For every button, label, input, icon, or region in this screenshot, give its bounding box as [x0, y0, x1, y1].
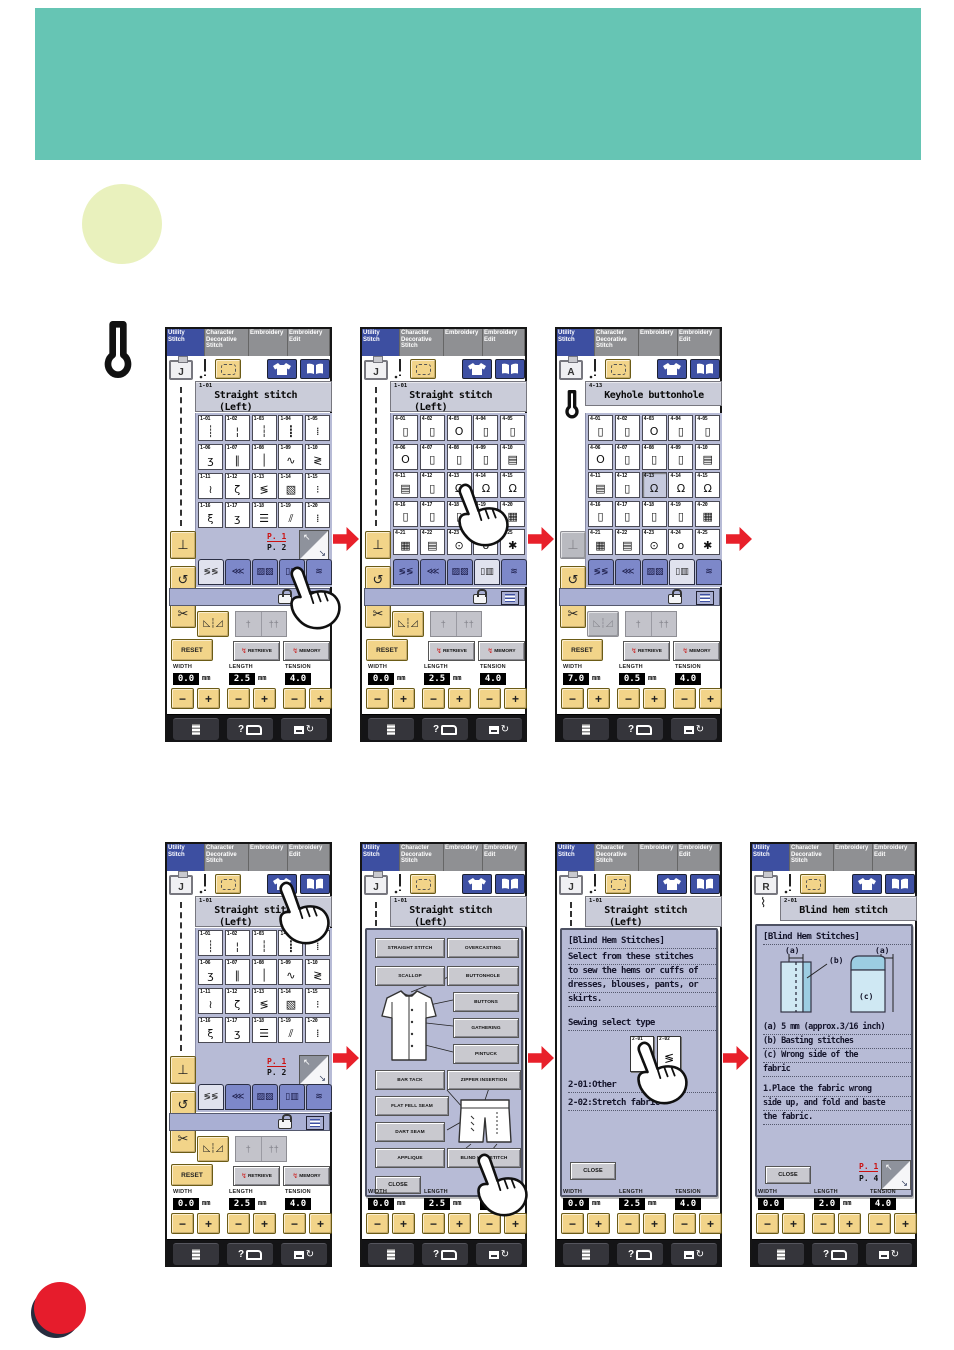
tab-embroidery-edit[interactable]: Embroidery Edit: [288, 329, 330, 356]
width-value: 0.0: [173, 1198, 199, 1210]
stitch-guide-book-icon[interactable]: [696, 591, 714, 605]
length-plus-button[interactable]: +: [448, 688, 471, 709]
tab-utility-stitch[interactable]: Utility Stitch: [167, 844, 205, 871]
stitch-guide-book-icon[interactable]: [501, 591, 519, 605]
tension-minus-button[interactable]: −: [673, 688, 696, 709]
tab-embroidery-edit[interactable]: Embroidery Edit: [483, 844, 525, 871]
length-minus-button[interactable]: −: [422, 1213, 445, 1234]
stitch-list-button[interactable]: [563, 1243, 609, 1265]
tension-value: 4.0: [480, 673, 506, 685]
stitch-cell-4-03[interactable]: 4-03O: [642, 415, 667, 441]
tab-embroidery[interactable]: Embroidery: [444, 329, 483, 356]
retrieve-button[interactable]: ↯RETRIEVE: [428, 641, 475, 661]
stitch-cell-glyph: ζ: [226, 995, 249, 1013]
tension-plus-button[interactable]: +: [894, 1213, 917, 1234]
presser-foot-exchange-button[interactable]: ↻: [866, 1243, 912, 1265]
width-plus-button[interactable]: +: [392, 1213, 415, 1234]
needle-thread-icon: ↯: [292, 647, 298, 655]
twin-needle-buttons[interactable]: †††: [235, 1136, 287, 1162]
tab-utility-stitch[interactable]: Utility Stitch: [167, 329, 205, 356]
length-minus-button[interactable]: −: [617, 1213, 640, 1234]
select-option-buttons[interactable]: BUTTONS: [453, 992, 519, 1012]
stitch-code: 1-01: [394, 383, 407, 389]
stitch-cell-1-20[interactable]: 1-20⁞: [305, 502, 330, 528]
select-option-applique[interactable]: APPLIQUE: [375, 1148, 445, 1168]
stitch-cell-1-07[interactable]: 1-07∥: [225, 959, 250, 985]
presser-foot-exchange-button[interactable]: ↻: [281, 718, 327, 740]
length-value: 2.5: [229, 1198, 255, 1210]
stitch-cell-4-21[interactable]: 4-21▦: [588, 529, 613, 555]
retrieve-button[interactable]: ↯RETRIEVE: [233, 641, 280, 661]
length-minus-button[interactable]: −: [227, 688, 250, 709]
mirror-image-button[interactable]: ◺┆◿: [392, 611, 424, 637]
page-turn-button[interactable]: ↖↘: [881, 1160, 911, 1190]
stitch-category-tab-5[interactable]: ≋: [306, 1084, 332, 1110]
stitch-category-tab-2[interactable]: ⋘: [420, 559, 446, 585]
length-plus-button[interactable]: +: [643, 1213, 666, 1234]
stitch-cell-glyph: ▯: [474, 422, 497, 440]
reset-button[interactable]: RESET: [366, 639, 408, 661]
tension-minus-button[interactable]: −: [283, 1213, 306, 1234]
help-button[interactable]: ?: [422, 718, 468, 740]
free-motion-button[interactable]: [605, 874, 631, 894]
stitch-cell-4-21[interactable]: 4-21▦: [393, 529, 418, 555]
fabric-type-select-button[interactable]: [852, 874, 882, 894]
stitch-cell-1-16[interactable]: 1-16ξ: [198, 1017, 223, 1043]
single-needle-icon: †: [431, 612, 457, 636]
tab-utility-stitch[interactable]: Utility Stitch: [362, 844, 400, 871]
stitch-cell-1-10[interactable]: 1-10≷: [305, 959, 330, 985]
stitch-category-tab-1[interactable]: ≶≶: [198, 559, 224, 585]
stitch-cell-1-18[interactable]: 1-18☰: [252, 502, 277, 528]
stitch-cell-1-09[interactable]: 1-09∿: [278, 444, 303, 470]
length-label: LENGTH: [229, 664, 253, 670]
free-motion-button[interactable]: [605, 359, 631, 379]
help-button[interactable]: ?: [617, 1243, 663, 1265]
tension-label: TENSION: [285, 1189, 311, 1195]
stitch-cell-4-10[interactable]: 4-10▤: [500, 444, 525, 470]
stitch-cell-1-08[interactable]: 1-08│: [252, 959, 277, 985]
manual-page: Utility StitchCharacter Decorative Stitc…: [0, 0, 954, 1350]
select-option-gathering[interactable]: GATHERING: [453, 1018, 519, 1038]
tab-embroidery[interactable]: Embroidery: [639, 844, 678, 871]
select-option-scallop[interactable]: SCALLOP: [375, 966, 445, 986]
twin-needle-buttons[interactable]: †††: [430, 611, 482, 637]
presser-foot-exchange-button[interactable]: ↻: [671, 718, 717, 740]
presser-foot-exchange-button[interactable]: ↻: [671, 1243, 717, 1265]
tension-minus-button[interactable]: −: [868, 1213, 891, 1234]
reset-button[interactable]: RESET: [171, 639, 213, 661]
help-button[interactable]: ?: [227, 718, 273, 740]
stitch-cell-4-17[interactable]: 4-17▯: [420, 501, 445, 527]
tab-utility-stitch[interactable]: Utility Stitch: [362, 329, 400, 356]
select-option-straight-stitch[interactable]: STRAIGHT STITCH: [375, 938, 445, 958]
needle-icon: [589, 873, 601, 895]
mode-tab-bar: Utility StitchCharacter Decorative Stitc…: [167, 844, 330, 871]
stitch-cell-1-03[interactable]: 1-03┆: [252, 415, 277, 441]
flow-arrow: [726, 527, 752, 551]
length-plus-button[interactable]: +: [448, 1213, 471, 1234]
stitch-cell-4-13[interactable]: 4-13Ω: [642, 472, 667, 498]
sewing-machine-icon: [246, 1250, 262, 1260]
free-motion-button[interactable]: [410, 359, 436, 379]
presser-foot-exchange-button[interactable]: ↻: [476, 1243, 522, 1265]
stitch-cell-4-15[interactable]: 4-15Ω: [695, 472, 720, 498]
tab-character-decorative-stitch[interactable]: Character Decorative Stitch: [400, 329, 444, 356]
width-plus-button[interactable]: +: [197, 1213, 220, 1234]
pattern-explanation-button[interactable]: [300, 359, 330, 379]
stitch-cell-4-04[interactable]: 4-04▯: [473, 415, 498, 441]
width-minus-button[interactable]: −: [171, 1213, 194, 1234]
stitch-cell-4-01[interactable]: 4-01▯: [588, 415, 613, 441]
stitch-cell-4-05[interactable]: 4-05▯: [695, 415, 720, 441]
twin-needle-buttons[interactable]: †††: [235, 611, 287, 637]
close-button[interactable]: CLOSE: [765, 1166, 811, 1184]
stitch-cell-4-12[interactable]: 4-12▯: [615, 472, 640, 498]
shirt-icon: [467, 362, 487, 376]
select-option-zipper-insertion[interactable]: ZIPPER INSERTION: [447, 1070, 521, 1090]
length-unit: mm: [258, 1199, 266, 1207]
close-button[interactable]: CLOSE: [570, 1162, 616, 1180]
stitch-cell-4-24[interactable]: 4-24o: [668, 529, 693, 555]
pattern-explanation-button[interactable]: [495, 359, 525, 379]
stitch-category-tab-1[interactable]: ≶≶: [393, 559, 419, 585]
stitch-cell-4-18[interactable]: 4-18▯: [642, 501, 667, 527]
tab-character-decorative-stitch[interactable]: Character Decorative Stitch: [595, 844, 639, 871]
stitch-cell-4-02[interactable]: 4-02▯: [420, 415, 445, 441]
stitch-cell-1-10[interactable]: 1-10≷: [305, 444, 330, 470]
tension-minus-button[interactable]: −: [283, 688, 306, 709]
stitch-cell-1-19[interactable]: 1-19⫽: [278, 502, 303, 528]
tension-plus-button[interactable]: +: [309, 1213, 332, 1234]
stitch-cell-4-22[interactable]: 4-22▤: [420, 529, 445, 555]
stitch-category-tab-3[interactable]: ▨▨: [642, 559, 668, 585]
stitch-cell-1-16[interactable]: 1-16ξ: [198, 502, 223, 528]
dialog-step-line: the fabric.: [763, 1112, 911, 1125]
width-label: WIDTH: [368, 1189, 387, 1195]
length-minus-button[interactable]: −: [812, 1213, 835, 1234]
machine-function-bar: ?↻: [362, 1239, 525, 1267]
width-minus-button[interactable]: −: [561, 688, 584, 709]
stitch-cell-4-09[interactable]: 4-09▯: [668, 444, 693, 470]
pattern-explanation-button[interactable]: [690, 359, 720, 379]
retrieve-button[interactable]: ↯RETRIEVE: [623, 641, 670, 661]
fabric-type-select-button[interactable]: [462, 359, 492, 379]
stitch-category-tab-4[interactable]: ▯▥: [279, 1084, 305, 1110]
tab-embroidery-edit[interactable]: Embroidery Edit: [678, 329, 720, 356]
page-turn-button[interactable]: ↖↘: [299, 530, 329, 560]
stitch-cell-4-11[interactable]: 4-11▤: [588, 472, 613, 498]
needle-thread-icon: ↯: [487, 647, 493, 655]
stitch-cell-1-14[interactable]: 1-14▧: [278, 473, 303, 499]
stitch-cell-4-17[interactable]: 4-17▯: [615, 501, 640, 527]
width-minus-button[interactable]: −: [756, 1213, 779, 1234]
mirror-image-button[interactable]: ◺┆◿: [197, 611, 229, 637]
stitch-cell-1-11[interactable]: 1-11≀: [198, 988, 223, 1014]
tab-embroidery[interactable]: Embroidery: [249, 329, 288, 356]
stitch-cell-glyph: ┋: [279, 422, 302, 440]
width-minus-button[interactable]: −: [171, 688, 194, 709]
memory-button[interactable]: ↯MEMORY: [673, 641, 720, 661]
stitch-cell-1-01[interactable]: 1-01┊: [198, 930, 223, 956]
reset-button[interactable]: RESET: [171, 1164, 213, 1186]
stitch-cell-1-01[interactable]: 1-01┊: [198, 415, 223, 441]
stitch-list-button[interactable]: [368, 718, 414, 740]
tab-utility-stitch[interactable]: Utility Stitch: [557, 844, 595, 871]
fabric-type-select-button[interactable]: [657, 359, 687, 379]
stitch-cell-glyph: ≶: [253, 480, 276, 498]
mirror-image-button[interactable]: ◺┆◿: [197, 1136, 229, 1162]
stitch-cell-4-06[interactable]: 4-06O: [393, 444, 418, 470]
tab-character-decorative-stitch[interactable]: Character Decorative Stitch: [205, 844, 249, 871]
width-plus-button[interactable]: +: [782, 1213, 805, 1234]
presser-foot-small-icon: [489, 1251, 499, 1259]
select-option-pintuck[interactable]: PINTUCK: [453, 1044, 519, 1064]
stitch-cell-4-05[interactable]: 4-05▯: [500, 415, 525, 441]
stitch-cell-4-22[interactable]: 4-22▤: [615, 529, 640, 555]
stitch-cell-glyph: ▦: [589, 536, 612, 554]
stitch-cell-4-23[interactable]: 4-23⊙: [642, 529, 667, 555]
straight-stitch-guide-line: [375, 387, 377, 526]
tab-embroidery-edit[interactable]: Embroidery Edit: [678, 844, 720, 871]
shirt-icon: [662, 362, 682, 376]
select-option-bar-tack[interactable]: BAR TACK: [375, 1070, 445, 1090]
stitch-cell-4-07[interactable]: 4-07▯: [615, 444, 640, 470]
fabric-type-select-button[interactable]: [657, 874, 687, 894]
stitch-guide-book-icon[interactable]: [306, 1116, 324, 1130]
pivot-button[interactable]: ⊥: [170, 1056, 196, 1084]
length-plus-button[interactable]: +: [253, 688, 276, 709]
stitch-category-tab-5[interactable]: ≋: [501, 559, 527, 585]
width-plus-button[interactable]: +: [197, 688, 220, 709]
help-button[interactable]: ?: [422, 1243, 468, 1265]
stitch-cell-1-02[interactable]: 1-02¦: [225, 930, 250, 956]
pattern-explanation-button[interactable]: [690, 874, 720, 894]
stitch-cell-4-25[interactable]: 4-25✱: [695, 529, 720, 555]
stitch-cell-1-17[interactable]: 1-17ʒ: [225, 1017, 250, 1043]
free-motion-button[interactable]: [410, 874, 436, 894]
stitch-list-button[interactable]: [173, 1243, 219, 1265]
tension-plus-button[interactable]: +: [699, 1213, 722, 1234]
width-plus-button[interactable]: +: [392, 688, 415, 709]
stitch-cell-1-06[interactable]: 1-06ʒ: [198, 959, 223, 985]
free-motion-icon: [806, 879, 821, 890]
length-plus-button[interactable]: +: [253, 1213, 276, 1234]
stitch-cell-1-05[interactable]: 1-05⁞: [305, 415, 330, 441]
stitch-name: Straight stitch: [214, 390, 297, 401]
tab-utility-stitch[interactable]: Utility Stitch: [752, 844, 790, 871]
help-button[interactable]: ?: [227, 1243, 273, 1265]
free-motion-button[interactable]: [215, 359, 241, 379]
tab-character-decorative-stitch[interactable]: Character Decorative Stitch: [790, 844, 834, 871]
stitch-cell-1-13[interactable]: 1-13≶: [252, 473, 277, 499]
stitch-cell-4-06[interactable]: 4-06O: [588, 444, 613, 470]
help-button[interactable]: ?: [812, 1243, 858, 1265]
stitch-cell-1-20[interactable]: 1-20⁞: [305, 1017, 330, 1043]
machine-function-bar: ?↻: [557, 714, 720, 742]
stitch-category-tab-3[interactable]: ▨▨: [252, 559, 278, 585]
memory-button[interactable]: ↯MEMORY: [283, 1166, 330, 1186]
stitch-category-tab-3[interactable]: ▨▨: [252, 1084, 278, 1110]
stitch-cell-4-10[interactable]: 4-10▤: [695, 444, 720, 470]
width-label: WIDTH: [173, 664, 192, 670]
length-plus-button[interactable]: +: [838, 1213, 861, 1234]
stitch-cell-1-15[interactable]: 1-15⁝: [305, 473, 330, 499]
tab-character-decorative-stitch[interactable]: Character Decorative Stitch: [205, 329, 249, 356]
stitch-cell-4-03[interactable]: 4-03O: [447, 415, 472, 441]
memory-button[interactable]: ↯MEMORY: [478, 641, 525, 661]
memory-button[interactable]: ↯MEMORY: [283, 641, 330, 661]
rotate-icon: ↻: [306, 1249, 314, 1260]
stitch-cell-4-16[interactable]: 4-16▯: [588, 501, 613, 527]
stitch-cell-4-19[interactable]: 4-19▯: [668, 501, 693, 527]
retrieve-button[interactable]: ↯RETRIEVE: [233, 1166, 280, 1186]
stitch-cell-1-09[interactable]: 1-09∿: [278, 959, 303, 985]
page-turn-button[interactable]: ↖↘: [299, 1055, 329, 1085]
stitch-cell-1-08[interactable]: 1-08│: [252, 444, 277, 470]
stitch-cell-1-12[interactable]: 1-12ζ: [225, 473, 250, 499]
stitch-category-tab-1[interactable]: ≶≶: [588, 559, 614, 585]
stitch-category-tab-4[interactable]: ▯▥: [669, 559, 695, 585]
reset-button[interactable]: RESET: [561, 639, 603, 661]
presser-foot-exchange-button[interactable]: ↻: [476, 718, 522, 740]
tension-minus-button[interactable]: −: [478, 688, 501, 709]
stitch-cell-1-17[interactable]: 1-17ʒ: [225, 502, 250, 528]
stitch-cell-glyph: O: [643, 422, 666, 440]
stitch-category-tab-5[interactable]: ≋: [696, 559, 722, 585]
rotate-icon: ↻: [501, 724, 509, 735]
stitch-cell-1-02[interactable]: 1-02¦: [225, 415, 250, 441]
stitch-cell-4-04[interactable]: 4-04▯: [668, 415, 693, 441]
stitch-cell-4-11[interactable]: 4-11▤: [393, 472, 418, 498]
length-minus-button[interactable]: −: [227, 1213, 250, 1234]
stitch-cell-1-18[interactable]: 1-18☰: [252, 1017, 277, 1043]
stitch-cell-1-04[interactable]: 1-04┋: [278, 415, 303, 441]
fabric-type-select-button[interactable]: [267, 359, 297, 379]
select-option-buttonhole[interactable]: BUTTONHOLE: [447, 966, 519, 986]
tab-character-decorative-stitch[interactable]: Character Decorative Stitch: [400, 844, 444, 871]
width-minus-button[interactable]: −: [366, 688, 389, 709]
stitch-category-tab-1[interactable]: ≶≶: [198, 1084, 224, 1110]
pattern-explanation-button[interactable]: [885, 874, 915, 894]
length-minus-button[interactable]: −: [422, 688, 445, 709]
stitch-cell-1-12[interactable]: 1-12ζ: [225, 988, 250, 1014]
tab-embroidery[interactable]: Embroidery: [444, 844, 483, 871]
stitch-category-tab-2[interactable]: ⋘: [615, 559, 641, 585]
width-plus-button[interactable]: +: [587, 688, 610, 709]
stitch-category-tab-4[interactable]: ▯▥: [474, 559, 500, 585]
width-unit: mm: [202, 674, 210, 682]
width-minus-button[interactable]: −: [366, 1213, 389, 1234]
tension-plus-button[interactable]: +: [699, 688, 722, 709]
stitch-cell-glyph: ▯: [669, 422, 692, 440]
stitch-cell-1-13[interactable]: 1-13≶: [252, 988, 277, 1014]
tension-minus-button[interactable]: −: [673, 1213, 696, 1234]
help-button[interactable]: ?: [617, 718, 663, 740]
machine-function-bar: ?↻: [557, 1239, 720, 1267]
stitch-cell-glyph: ┆: [253, 422, 276, 440]
select-option-flat-fell-seam[interactable]: FLAT FELL SEAM: [375, 1096, 449, 1116]
select-option-dart-seam[interactable]: DART SEAM: [375, 1122, 445, 1142]
flow-arrow: [528, 1046, 554, 1070]
stitch-code: 1-01: [589, 898, 602, 904]
stitch-cell-4-02[interactable]: 4-02▯: [615, 415, 640, 441]
mirror-image-button[interactable]: ◺┆◿: [587, 611, 619, 637]
stitch-cell-1-19[interactable]: 1-19⫽: [278, 1017, 303, 1043]
stitch-cell-1-03[interactable]: 1-03┆: [252, 930, 277, 956]
stitch-cell-1-14[interactable]: 1-14▧: [278, 988, 303, 1014]
width-label: WIDTH: [368, 664, 387, 670]
presser-foot-exchange-button[interactable]: ↻: [281, 1243, 327, 1265]
stitch-list-button[interactable]: [563, 718, 609, 740]
tension-plus-button[interactable]: +: [309, 688, 332, 709]
tab-character-decorative-stitch[interactable]: Character Decorative Stitch: [595, 329, 639, 356]
stitch-code: 1-01: [394, 898, 407, 904]
free-motion-button[interactable]: [800, 874, 826, 894]
pivot-button[interactable]: ⊥: [170, 531, 196, 559]
stitch-cell-1-11[interactable]: 1-11≀: [198, 473, 223, 499]
stitch-category-tab-2[interactable]: ⋘: [225, 1084, 251, 1110]
stitch-cell-glyph: ≶: [253, 995, 276, 1013]
stitch-cell-1-07[interactable]: 1-07∥: [225, 444, 250, 470]
pattern-explanation-button[interactable]: [495, 874, 525, 894]
pivot-button[interactable]: ⊥: [365, 531, 391, 559]
book-icon: [695, 362, 715, 376]
stitch-cell-4-01[interactable]: 4-01▯: [393, 415, 418, 441]
stitch-list-button[interactable]: [368, 1243, 414, 1265]
tension-plus-button[interactable]: +: [504, 688, 527, 709]
width-minus-button[interactable]: −: [561, 1213, 584, 1234]
tab-embroidery[interactable]: Embroidery: [249, 844, 288, 871]
stitch-cell-4-07[interactable]: 4-07▯: [420, 444, 445, 470]
width-plus-button[interactable]: +: [587, 1213, 610, 1234]
stitch-cell-4-16[interactable]: 4-16▯: [393, 501, 418, 527]
lock-icon: [668, 594, 682, 604]
stitch-category-tab-3[interactable]: ▨▨: [447, 559, 473, 585]
stitch-cell-4-08[interactable]: 4-08▯: [447, 444, 472, 470]
stitch-list-button[interactable]: [173, 718, 219, 740]
twin-needle-buttons[interactable]: †††: [625, 611, 677, 637]
fabric-type-select-button[interactable]: [462, 874, 492, 894]
blind-hem-stitch-icon: ⌇: [760, 896, 774, 922]
tab-embroidery-edit[interactable]: Embroidery Edit: [483, 329, 525, 356]
length-plus-button[interactable]: +: [643, 688, 666, 709]
stitch-list-button[interactable]: [758, 1243, 804, 1265]
stitch-cell-4-09[interactable]: 4-09▯: [473, 444, 498, 470]
tab-embroidery-edit[interactable]: Embroidery Edit: [873, 844, 915, 871]
stitch-cell-4-08[interactable]: 4-08▯: [642, 444, 667, 470]
pivot-button[interactable]: ⊥: [560, 531, 586, 559]
sewing-machine-icon: [636, 725, 652, 735]
tension-value: 4.0: [285, 1198, 311, 1210]
stitch-cell-glyph: ¦: [226, 937, 249, 955]
stitch-name-line2: (Left): [414, 402, 524, 413]
select-option-overcasting[interactable]: OVERCASTING: [447, 938, 519, 958]
length-unit: mm: [258, 674, 266, 682]
free-motion-button[interactable]: [215, 874, 241, 894]
stitch-cell-1-15[interactable]: 1-15⁝: [305, 988, 330, 1014]
stitch-cell-4-14[interactable]: 4-14Ω: [668, 472, 693, 498]
stitch-cell-4-12[interactable]: 4-12▯: [420, 472, 445, 498]
stitch-category-tab-2[interactable]: ⋘: [225, 559, 251, 585]
tab-embroidery-edit[interactable]: Embroidery Edit: [288, 844, 330, 871]
tab-utility-stitch[interactable]: Utility Stitch: [557, 329, 595, 356]
length-minus-button[interactable]: −: [617, 688, 640, 709]
stitch-cell-4-20[interactable]: 4-20▦: [695, 501, 720, 527]
tab-embroidery[interactable]: Embroidery: [639, 329, 678, 356]
stitch-cell-1-06[interactable]: 1-06ʒ: [198, 444, 223, 470]
tab-embroidery[interactable]: Embroidery: [834, 844, 873, 871]
